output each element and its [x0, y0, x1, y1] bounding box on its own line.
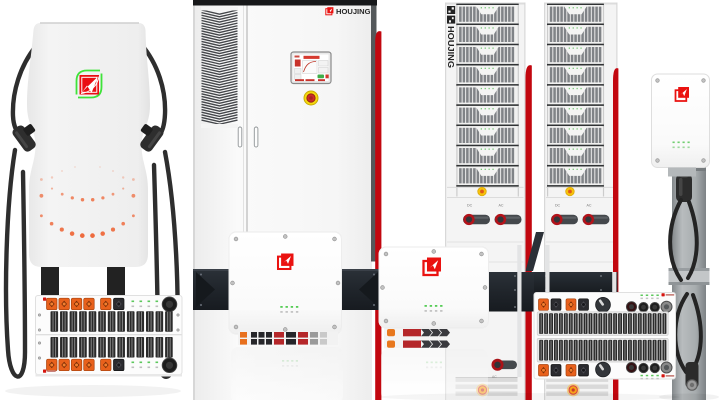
svg-text:AC: AC — [586, 204, 591, 208]
svg-text:HOUJING: HOUJING — [446, 26, 456, 68]
svg-text:AC: AC — [499, 204, 504, 208]
svg-text:DC: DC — [467, 204, 473, 208]
svg-text:DC: DC — [555, 204, 561, 208]
svg-text:AC: AC — [492, 375, 497, 379]
svg-text:HOUJING: HOUJING — [336, 7, 371, 16]
